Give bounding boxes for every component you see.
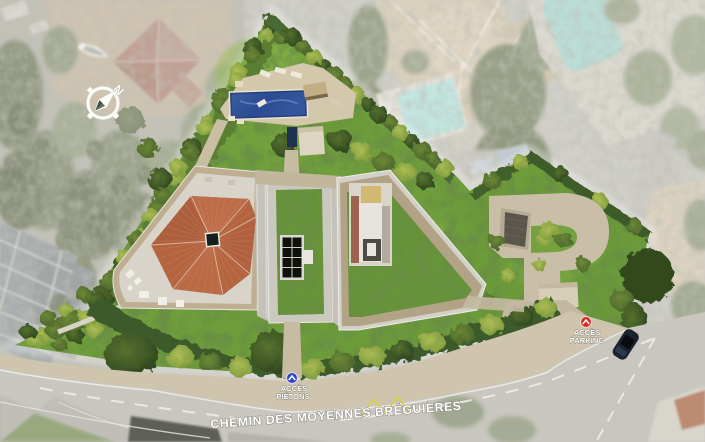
svg-text:PARKING: PARKING [570,336,605,345]
svg-text:PIÉTONS: PIÉTONS [276,392,309,401]
